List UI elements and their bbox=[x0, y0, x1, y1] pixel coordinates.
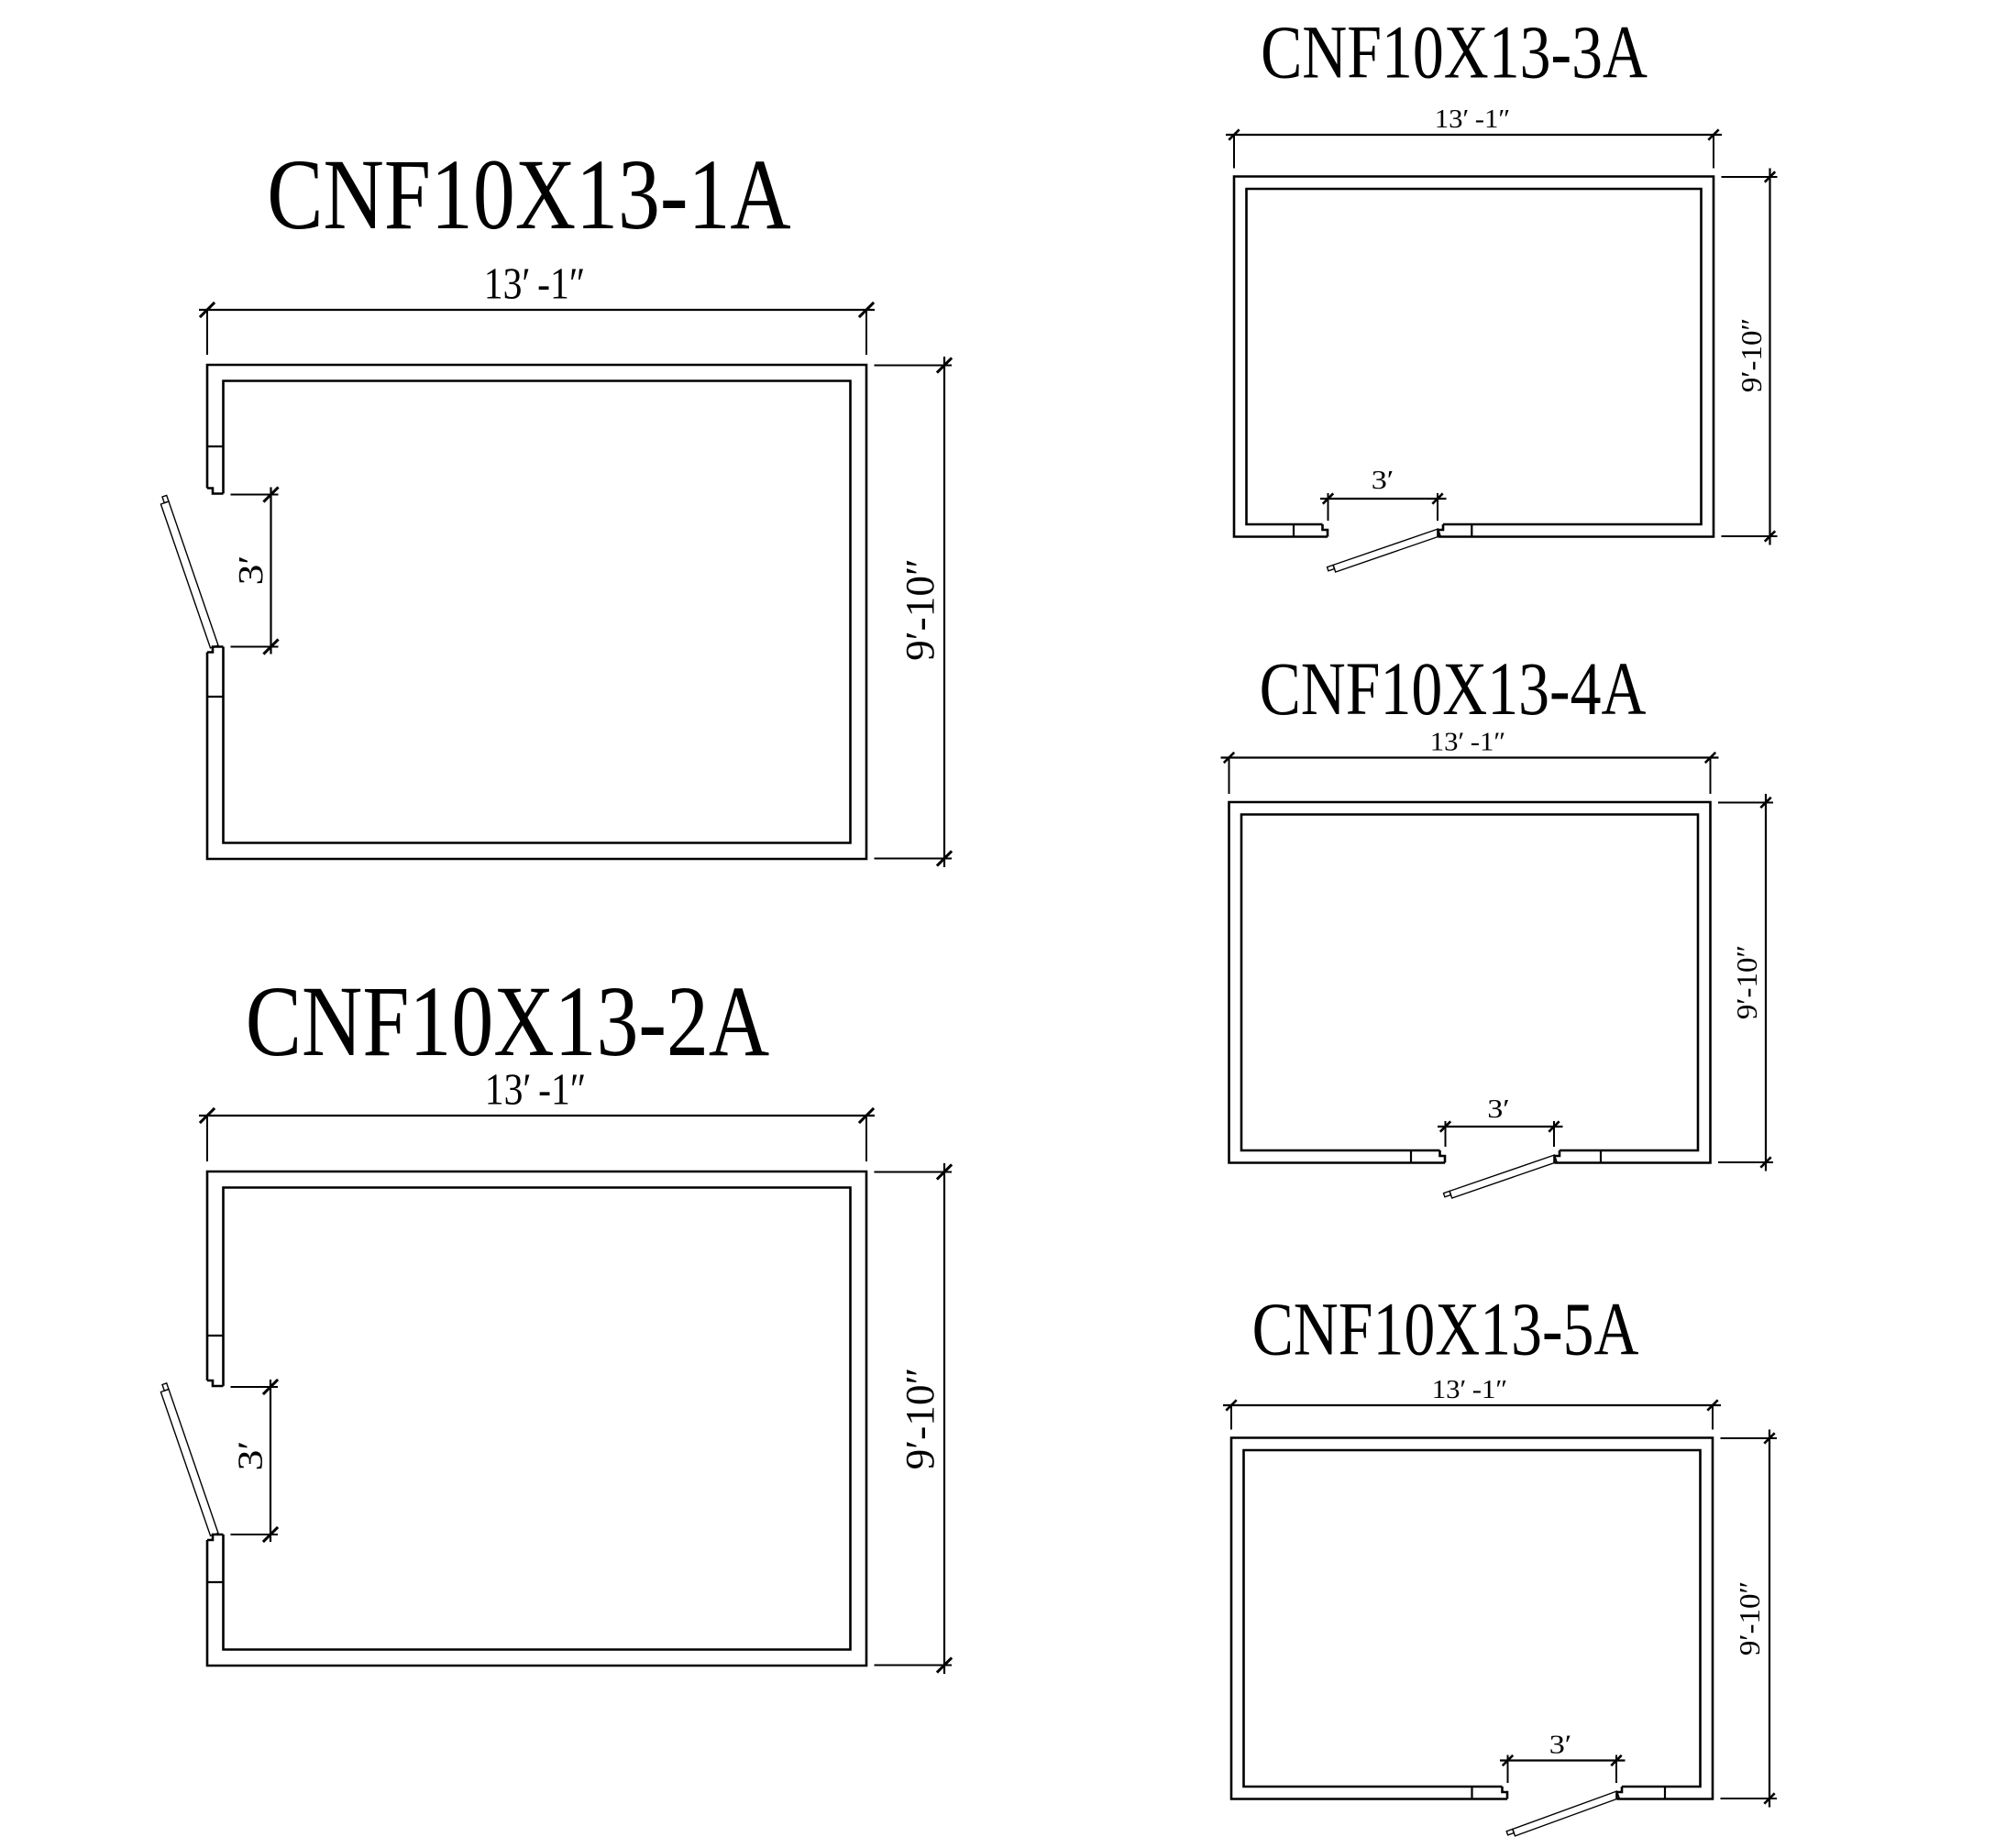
svg-text:CNF10X13-5A: CNF10X13-5A bbox=[1252, 1287, 1639, 1371]
svg-text:CNF10X13-1A: CNF10X13-1A bbox=[267, 138, 791, 250]
svg-text:3′: 3′ bbox=[232, 1441, 270, 1471]
svg-text:9′-10″: 9′-10″ bbox=[1736, 318, 1768, 392]
svg-text:3′: 3′ bbox=[1549, 1730, 1572, 1759]
svg-text:CNF10X13-4A: CNF10X13-4A bbox=[1260, 647, 1647, 731]
svg-text:3′: 3′ bbox=[1487, 1094, 1510, 1124]
svg-text:9′-10″: 9′-10″ bbox=[898, 1368, 942, 1470]
svg-text:CNF10X13-3A: CNF10X13-3A bbox=[1261, 10, 1648, 94]
svg-text:3′: 3′ bbox=[1372, 466, 1394, 495]
svg-text:9′-10″: 9′-10″ bbox=[898, 558, 942, 661]
svg-text:9′-10″: 9′-10″ bbox=[1734, 1581, 1766, 1655]
svg-text:3′: 3′ bbox=[233, 555, 271, 586]
svg-text:9′-10″: 9′-10″ bbox=[1731, 945, 1763, 1019]
svg-text:CNF10X13-2A: CNF10X13-2A bbox=[246, 965, 770, 1077]
